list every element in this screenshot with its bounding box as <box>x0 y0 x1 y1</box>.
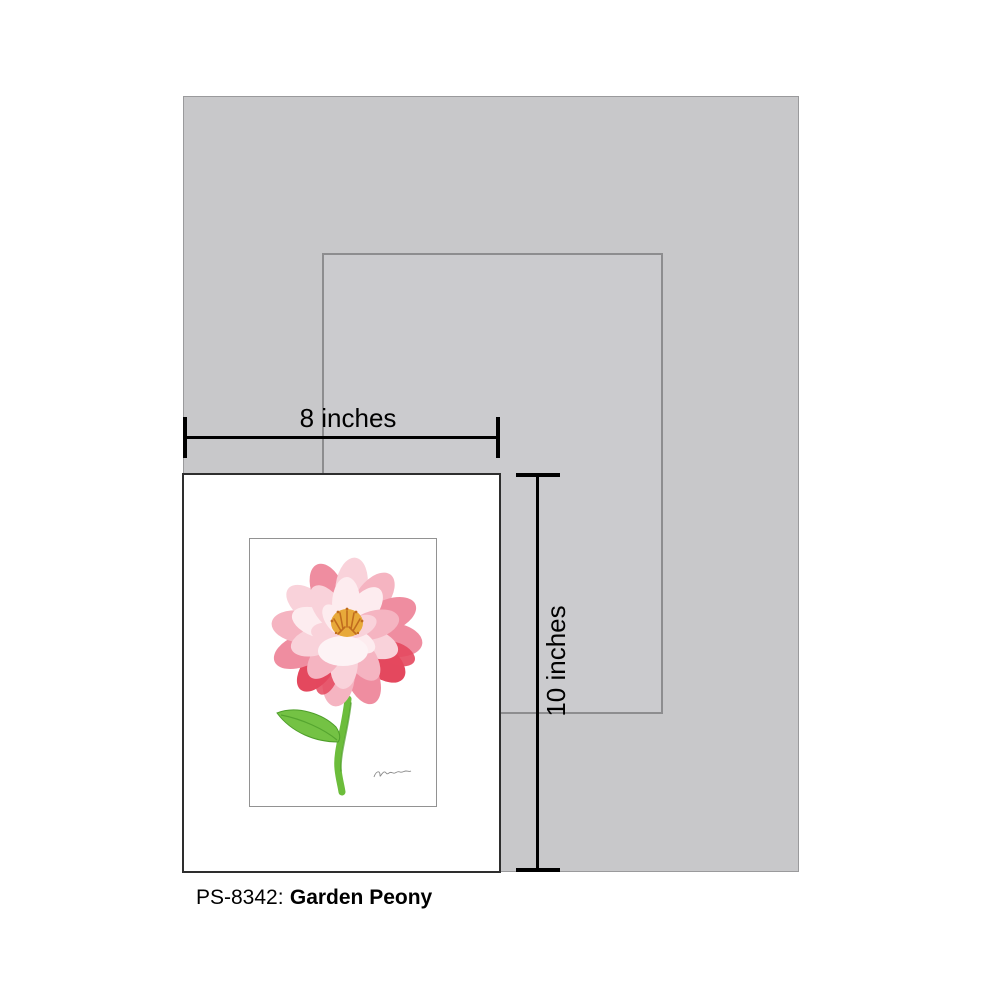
print-preview <box>182 473 501 873</box>
peony-illustration <box>250 539 436 806</box>
height-dimension-cap-bottom <box>516 868 560 872</box>
peony-stem <box>338 699 351 792</box>
width-dimension-line <box>184 436 499 439</box>
artist-signature <box>374 771 411 777</box>
size-guide-canvas: 8 inches 10 inches PS-8342:Garden Peony <box>0 0 984 984</box>
peony-leaf <box>277 710 340 742</box>
width-dimension-label: 8 inches <box>190 404 506 432</box>
height-dimension-label: 10 inches <box>542 571 572 751</box>
artwork-frame <box>249 538 437 807</box>
height-dimension-line <box>536 475 539 871</box>
product-sku: PS-8342: <box>196 886 284 909</box>
product-caption: PS-8342:Garden Peony <box>196 886 432 910</box>
product-title: Garden Peony <box>290 886 432 909</box>
